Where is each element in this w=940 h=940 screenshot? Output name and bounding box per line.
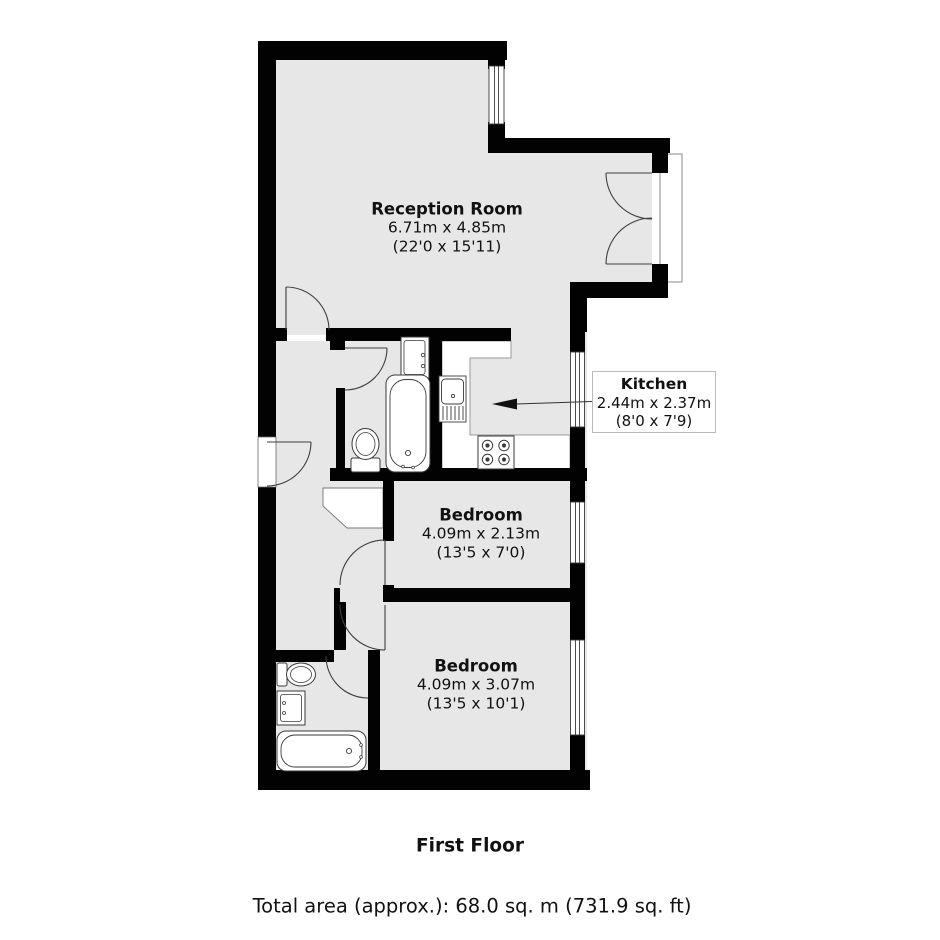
window-reception	[489, 66, 504, 124]
ensuite-toilet-icon	[277, 663, 316, 686]
wall-bottom	[258, 770, 590, 790]
room-metric-dimensions: 4.09m x 2.13m	[422, 525, 540, 544]
room-metric-dimensions: 4.09m x 3.07m	[417, 676, 535, 695]
room-name: Kitchen	[593, 375, 715, 394]
bedroom2-label: Bedroom 4.09m x 3.07m (13'5 x 10'1)	[417, 657, 535, 714]
room-name: Bedroom	[417, 657, 535, 676]
floorplan-drawing	[0, 0, 940, 940]
room-name: Reception Room	[371, 200, 523, 219]
toilet-icon	[351, 429, 380, 473]
bathtub-icon	[386, 375, 430, 472]
total-area-text: Total area (approx.): 68.0 sq. m (731.9 …	[253, 895, 692, 918]
room-imperial-dimensions: (13'5 x 7'0)	[422, 544, 540, 563]
kitchen-sink-icon	[439, 376, 466, 422]
room-metric-dimensions: 6.71m x 4.85m	[371, 219, 523, 238]
reception-floor	[270, 55, 490, 335]
room-name: Bedroom	[422, 506, 540, 525]
bathroom-sink-icon	[401, 337, 429, 378]
floorplan-page: Reception Room 6.71m x 4.85m (22'0 x 15'…	[0, 0, 940, 940]
wall-bedroom-right-b	[570, 735, 585, 775]
room-imperial-dimensions: (8'0 x 7'9)	[593, 412, 715, 431]
wall-french-stub-bottom	[652, 264, 668, 283]
wall-extension-bottom	[570, 282, 668, 298]
window-bedroom1	[571, 502, 585, 563]
wall-bathroom-left	[336, 388, 345, 472]
wall-bedroom-divider-b	[385, 588, 570, 602]
room-metric-dimensions: 2.44m x 2.37m	[593, 394, 715, 413]
wall-right-segment	[570, 296, 587, 332]
window-bedroom2	[571, 640, 585, 735]
wall-kitchen-right-b	[570, 427, 585, 503]
ensuite-bathtub-icon	[277, 731, 366, 771]
window-kitchen	[571, 352, 585, 427]
room-imperial-dimensions: (22'0 x 15'11)	[371, 238, 523, 257]
wall-extension-top	[488, 138, 670, 153]
wall-left-upper	[258, 41, 276, 437]
ensuite-sink-icon	[277, 691, 305, 725]
hob-icon	[478, 436, 514, 469]
wall-bedroom-right-a	[570, 563, 585, 641]
entrance-threshold	[258, 437, 276, 487]
wall-left-lower	[258, 487, 276, 790]
wall-reception-bottom-left	[274, 328, 287, 341]
wall-bathdoor-stub	[330, 337, 345, 350]
reception-room-label: Reception Room 6.71m x 4.85m (22'0 x 15'…	[371, 200, 523, 257]
floor-title: First Floor	[416, 836, 524, 857]
wall-top	[258, 41, 507, 60]
kitchen-label-callout: Kitchen 2.44m x 2.37m (8'0 x 7'9)	[592, 371, 716, 433]
wall-french-stub-top	[652, 153, 668, 173]
room-imperial-dimensions: (13'5 x 10'1)	[417, 695, 535, 714]
wall-bedroom1-left	[383, 481, 394, 541]
wall-ensuite-right	[368, 650, 380, 772]
wall-bedroom-divider-a	[334, 588, 340, 602]
balcony-outline	[660, 154, 682, 282]
wall-ensuite-top	[276, 650, 334, 662]
bedroom1-label: Bedroom 4.09m x 2.13m (13'5 x 7'0)	[422, 506, 540, 563]
wall-kitchen-right-a	[570, 330, 585, 354]
